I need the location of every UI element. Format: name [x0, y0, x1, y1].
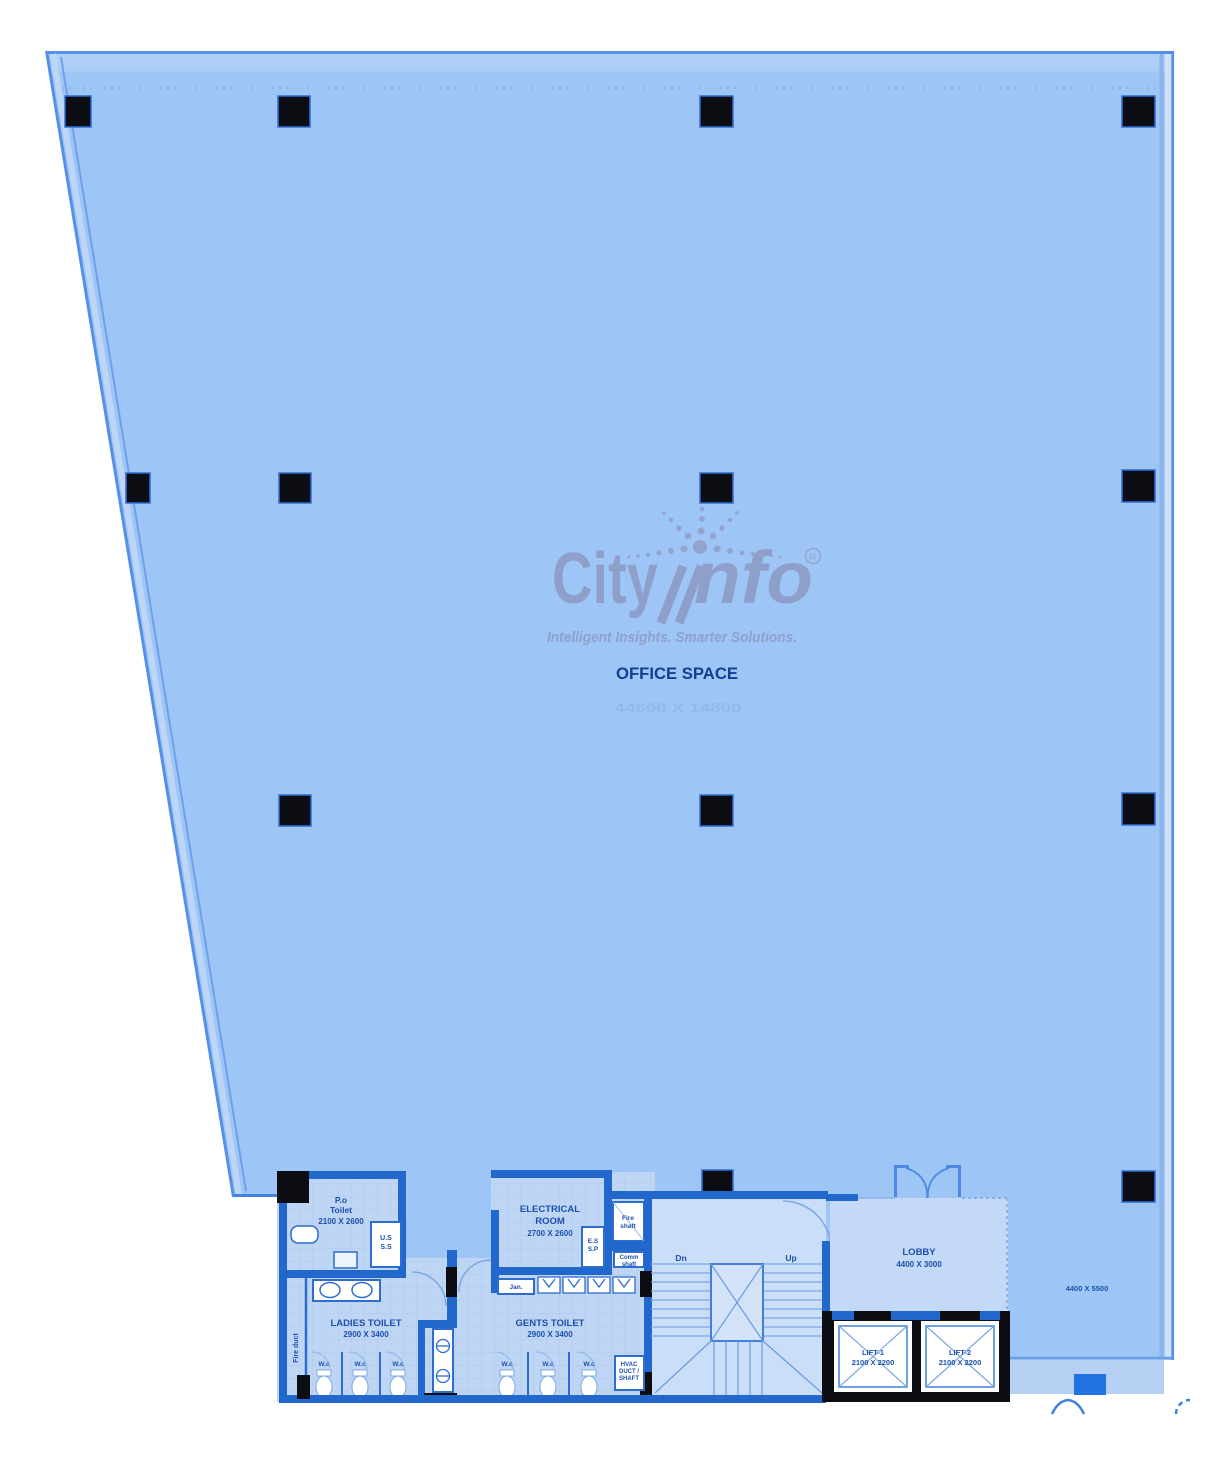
svg-text:LADIES TOILET: LADIES TOILET [330, 1318, 401, 1329]
svg-text:W.c: W.c [354, 1361, 366, 1368]
svg-text:LIFT-1: LIFT-1 [862, 1348, 884, 1357]
svg-text:U.S: U.S [380, 1235, 392, 1242]
svg-text:44600 X 14800: 44600 X 14800 [615, 701, 742, 715]
svg-text:Dn: Dn [675, 1253, 686, 1263]
svg-text:S.S: S.S [380, 1244, 392, 1251]
svg-text:nfo: nfo [694, 536, 813, 619]
svg-text:shaft: shaft [622, 1262, 636, 1268]
svg-text:Toilet: Toilet [330, 1205, 352, 1215]
svg-text:4400 X 3000: 4400 X 3000 [896, 1260, 942, 1269]
svg-text:W.c: W.c [392, 1361, 404, 1368]
svg-text:GENTS TOILET: GENTS TOILET [516, 1318, 585, 1329]
svg-text:2100 X 2600: 2100 X 2600 [318, 1217, 364, 1226]
svg-text:W.c: W.c [501, 1361, 513, 1368]
svg-text:Intelligent Insights. Smarter: Intelligent Insights. Smarter Solutions. [547, 629, 797, 646]
svg-text:ELECTRICAL: ELECTRICAL [520, 1204, 580, 1215]
svg-text:2900 X 3400: 2900 X 3400 [527, 1330, 573, 1339]
svg-text:2100 X 2200: 2100 X 2200 [852, 1358, 895, 1367]
svg-text:W.c: W.c [542, 1361, 554, 1368]
svg-text:ROOM: ROOM [535, 1216, 565, 1227]
svg-text:W.c: W.c [318, 1361, 330, 1368]
svg-text:Up: Up [785, 1253, 796, 1263]
svg-text:LIFT-2: LIFT-2 [949, 1348, 971, 1357]
svg-text:OFFICE SPACE: OFFICE SPACE [616, 665, 738, 683]
svg-text:Fire duct: Fire duct [293, 1333, 300, 1363]
svg-text:W.c: W.c [583, 1361, 595, 1368]
svg-text:DUCT /: DUCT / [619, 1369, 639, 1375]
svg-text:4400 X 5500: 4400 X 5500 [1066, 1284, 1109, 1293]
svg-text:2900 X 3400: 2900 X 3400 [343, 1330, 389, 1339]
svg-text:Jan.: Jan. [509, 1284, 522, 1291]
svg-text:SHAFT: SHAFT [619, 1376, 639, 1382]
svg-text:S.P: S.P [588, 1246, 599, 1253]
svg-text:P.o: P.o [335, 1195, 347, 1205]
svg-text:LOBBY: LOBBY [902, 1247, 936, 1258]
svg-text:Fire: Fire [622, 1215, 634, 1222]
svg-text:shaft: shaft [620, 1223, 636, 1230]
svg-text:2100 X 2200: 2100 X 2200 [939, 1358, 982, 1367]
svg-text:E.S: E.S [588, 1238, 599, 1245]
svg-text:2700 X 2600: 2700 X 2600 [527, 1229, 573, 1238]
svg-text:HVAC: HVAC [621, 1362, 638, 1368]
svg-text:City: City [552, 539, 658, 619]
svg-text:R: R [809, 552, 817, 564]
svg-text:Comm: Comm [620, 1255, 639, 1261]
